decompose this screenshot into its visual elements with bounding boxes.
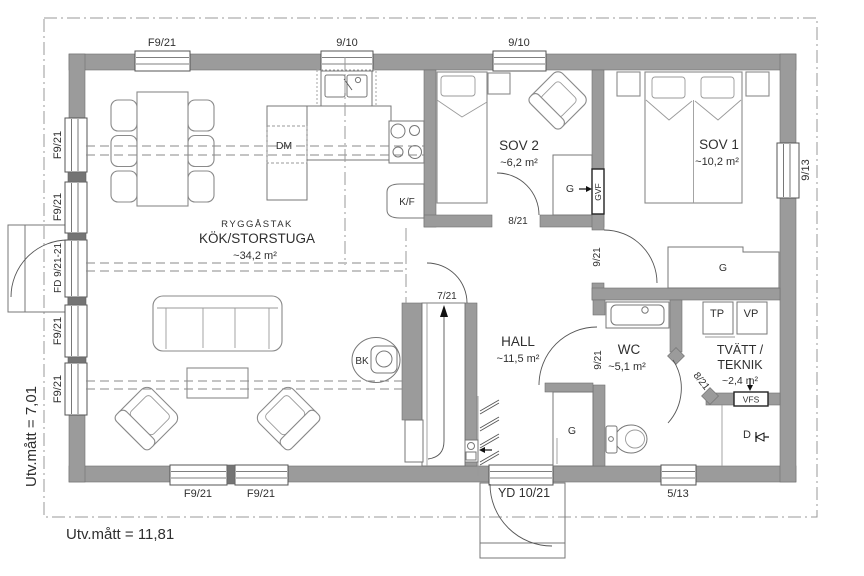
kitchen-counter <box>305 106 391 160</box>
window-label-f921-left-4: F9/21 <box>52 375 64 403</box>
hall-name-label: HALL <box>501 334 535 349</box>
tp-label: TP <box>710 308 724 320</box>
window-910-sov2 <box>493 51 546 71</box>
sov1-area-label: ~10,2 m² <box>695 156 739 168</box>
sov2-area-label: ~6,2 m² <box>500 157 538 169</box>
bed-single <box>437 72 487 203</box>
nightstand <box>617 72 640 96</box>
entry-door-label-yd: YD 10/21 <box>498 486 550 500</box>
toilet <box>606 425 647 453</box>
window-label-910-sov2: 9/10 <box>508 37 529 49</box>
armchair <box>113 384 181 452</box>
chair <box>111 136 137 167</box>
window-label-f921-left-1: F9/21 <box>52 131 64 159</box>
armchair <box>254 384 322 452</box>
door-swing-sov2 <box>497 173 539 215</box>
kitchen-island <box>267 106 307 200</box>
chair <box>111 100 137 131</box>
wc-name-label: WC <box>618 342 641 357</box>
dining-set <box>111 92 214 206</box>
chimney-wall <box>402 303 422 420</box>
sov1-name-label: SOV 1 <box>699 137 739 152</box>
vp-label: VP <box>744 308 759 320</box>
wardrobe-label-sov1: G <box>719 262 727 274</box>
kitchen-ceiling-label: RYGGÅSTAK <box>221 219 293 230</box>
wc-fixtures <box>606 302 669 453</box>
living-room <box>113 296 400 452</box>
kitchen-sink <box>321 71 372 106</box>
drain-label: D <box>743 429 751 441</box>
window-label-f921-bottom-2: F9/21 <box>247 488 275 500</box>
hall-area-label: ~11,5 m² <box>497 353 540 365</box>
floorplan-page: Utv.mått = 11,81 Utv.mått = 7,01 F9/21 9… <box>0 0 864 576</box>
door-swing-wc <box>539 327 597 385</box>
dishwasher-label: DM <box>276 140 292 152</box>
window-f921-bottom-1 <box>170 465 227 485</box>
sov1-furniture <box>617 72 779 288</box>
sov2-name-label: SOV 2 <box>499 138 539 153</box>
dining-table <box>137 92 188 206</box>
window-913-right <box>777 143 799 198</box>
wc-area-label: ~5,1 m² <box>608 361 646 373</box>
fridge-freezer-label: K/F <box>399 197 415 208</box>
window-f921-left-2 <box>65 182 87 233</box>
kitchen-area-label: ~34,2 m² <box>233 250 277 262</box>
chair <box>188 136 214 167</box>
kitchen-name-label: KÖK/STORSTUGA <box>199 231 315 246</box>
stove <box>389 121 424 163</box>
coat-rack <box>478 396 499 476</box>
window-label-f921-top: F9/21 <box>148 37 176 49</box>
outer-width-label: Utv.mått = 11,81 <box>66 526 174 543</box>
wood-stove-label: BK <box>355 356 369 367</box>
washbasin <box>606 302 669 328</box>
wardrobe-label-sov2: G <box>566 183 574 195</box>
window-label-913: 9/13 <box>800 159 812 180</box>
chair <box>188 171 214 202</box>
sofa <box>153 296 282 351</box>
outer-height-label: Utv.mått = 7,01 <box>23 386 40 487</box>
door-swing-laundry <box>668 360 681 423</box>
window-label-513: 5/13 <box>667 488 688 500</box>
window-label-910-kitchen: 9/10 <box>336 37 357 49</box>
laundry-name-label-2: TEKNIK <box>717 358 763 372</box>
window-f921-top <box>135 51 190 71</box>
laundry-area-label: ~2,4 m² <box>722 375 758 387</box>
window-f921-left-4 <box>65 363 87 415</box>
drain-valve-symbol <box>756 432 769 442</box>
floorplan-drawing: Utv.mått = 11,81 Utv.mått = 7,01 F9/21 9… <box>0 0 864 576</box>
wardrobe-label-hall: G <box>568 425 576 437</box>
door-label-721: 7/21 <box>437 291 457 302</box>
laundry-name-label-1: TVÄTT / <box>717 343 764 357</box>
door-swing-sov1 <box>604 230 657 283</box>
nightstand <box>488 73 510 94</box>
gvf-label: GVF <box>593 183 603 200</box>
entry-door-label-fd: FD 9/21-21 <box>53 243 64 293</box>
coffee-table <box>187 368 248 398</box>
electrical-box <box>464 440 478 462</box>
door-label-921-sov1: 9/21 <box>592 247 603 267</box>
window-f921-left-3 <box>65 305 87 357</box>
entry-door-fd-left <box>65 240 87 297</box>
door-label-921-wc: 9/21 <box>593 350 604 370</box>
window-f921-bottom-2 <box>235 465 288 485</box>
window-label-f921-bottom-1: F9/21 <box>184 488 212 500</box>
nightstand <box>746 72 769 96</box>
door-swings <box>11 173 681 546</box>
window-910-kitchen <box>321 51 373 71</box>
window-label-f921-left-3: F9/21 <box>52 317 64 345</box>
armchair <box>527 69 589 131</box>
chair <box>188 100 214 131</box>
wall-right <box>780 54 796 482</box>
vfs-label: VFS <box>743 395 760 405</box>
entry-door-yd-bottom <box>489 465 553 485</box>
window-513-bottom <box>661 465 696 485</box>
chair <box>111 171 137 202</box>
window-label-f921-left-2: F9/21 <box>52 193 64 221</box>
window-f921-left-1 <box>65 118 87 172</box>
door-label-821-sov2: 8/21 <box>508 216 528 227</box>
